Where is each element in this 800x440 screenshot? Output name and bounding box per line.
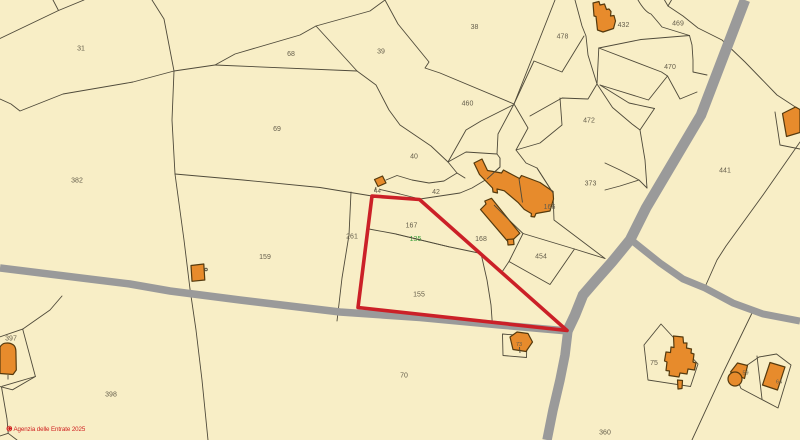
svg-text:38: 38 xyxy=(471,24,479,31)
svg-text:373: 373 xyxy=(585,181,597,188)
svg-text:454: 454 xyxy=(535,254,547,261)
svg-text:155: 155 xyxy=(413,292,425,299)
svg-text:168: 168 xyxy=(475,236,487,243)
svg-text:167: 167 xyxy=(406,223,418,230)
svg-text:68: 68 xyxy=(287,51,295,58)
svg-text:44: 44 xyxy=(374,189,381,195)
svg-text:398: 398 xyxy=(105,392,117,399)
svg-text:360: 360 xyxy=(599,430,611,437)
svg-text:470: 470 xyxy=(664,64,676,71)
svg-text:460: 460 xyxy=(462,101,474,108)
svg-text:472: 472 xyxy=(583,118,595,125)
svg-text:75: 75 xyxy=(650,360,658,367)
svg-text:64: 64 xyxy=(776,380,782,386)
svg-text:166: 166 xyxy=(544,204,556,211)
svg-text:73: 73 xyxy=(516,342,522,348)
svg-text:40: 40 xyxy=(410,154,418,161)
svg-text:382: 382 xyxy=(71,178,83,185)
svg-text:432: 432 xyxy=(618,22,630,29)
svg-text:478: 478 xyxy=(557,34,569,41)
svg-text:59: 59 xyxy=(742,371,748,377)
svg-text:469: 469 xyxy=(672,21,684,28)
svg-text:441: 441 xyxy=(719,168,731,175)
svg-text:70: 70 xyxy=(400,373,408,380)
svg-text:31: 31 xyxy=(77,46,85,53)
svg-text:159: 159 xyxy=(259,254,271,261)
svg-text:397: 397 xyxy=(5,336,17,343)
svg-text:39: 39 xyxy=(377,49,385,56)
svg-text:69: 69 xyxy=(273,126,281,133)
svg-text:261: 261 xyxy=(346,234,358,241)
svg-text:Agenzia delle Entrate 2025: Agenzia delle Entrate 2025 xyxy=(14,426,86,433)
svg-text:C: C xyxy=(7,427,11,433)
svg-text:42: 42 xyxy=(432,189,440,196)
